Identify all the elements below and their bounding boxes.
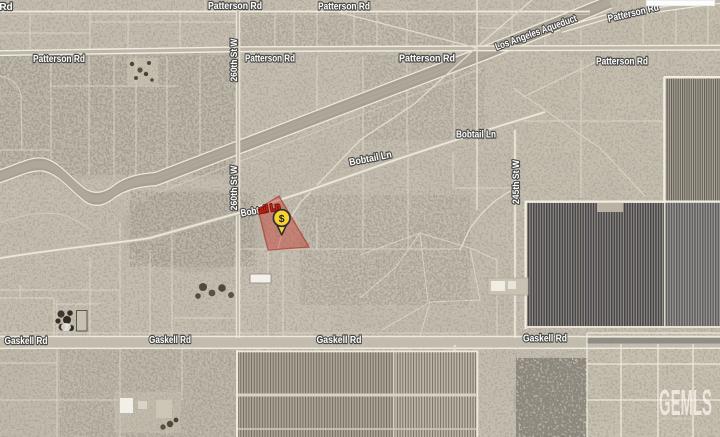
svg-text:Patterson Rd: Patterson Rd <box>596 57 648 68</box>
svg-text:Patterson Rd: Patterson Rd <box>208 1 262 12</box>
svg-text:245th St W: 245th St W <box>511 160 521 204</box>
svg-text:Patterson Rd: Patterson Rd <box>245 54 295 65</box>
svg-text:Gaskell Rd: Gaskell Rd <box>5 336 48 347</box>
svg-text:Patterson Rd: Patterson Rd <box>318 2 370 13</box>
svg-text:Bobtail Ln: Bobtail Ln <box>456 130 496 141</box>
svg-text:Gaskell Rd: Gaskell Rd <box>523 334 567 345</box>
svg-text:Rd: Rd <box>0 2 13 13</box>
svg-text:260th St W: 260th St W <box>229 38 239 81</box>
svg-text:Patterson Rd: Patterson Rd <box>399 54 455 65</box>
svg-text:Gaskell Rd: Gaskell Rd <box>317 335 362 346</box>
svg-text:$: $ <box>279 213 285 225</box>
svg-text:GREATER BAKERSFIELD MLS: GREATER BAKERSFIELD MLS <box>660 416 694 421</box>
svg-text:Patterson Rd: Patterson Rd <box>33 54 85 65</box>
svg-text:260th St W: 260th St W <box>229 165 239 210</box>
svg-text:Gaskell Rd: Gaskell Rd <box>149 335 191 346</box>
